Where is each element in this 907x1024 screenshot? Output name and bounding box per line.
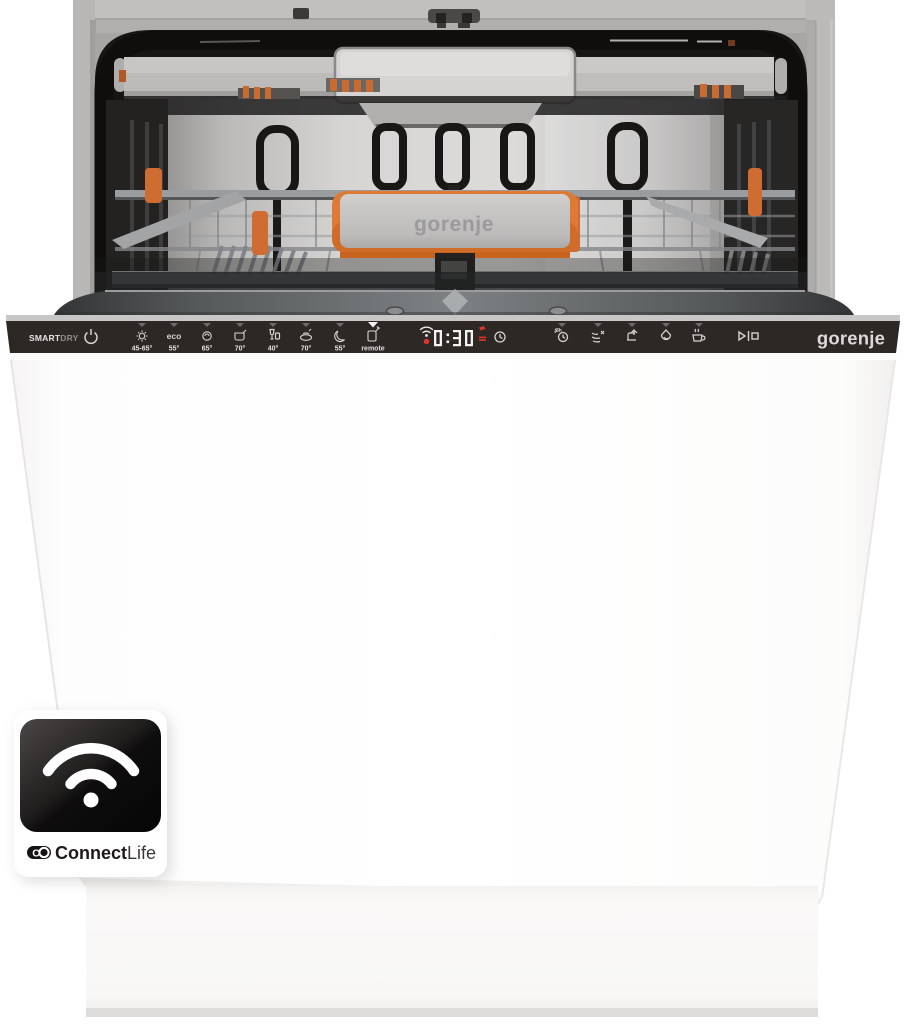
- svg-text:70°: 70°: [301, 345, 312, 353]
- svg-text:gorenje: gorenje: [414, 213, 494, 236]
- svg-text:65°: 65°: [202, 345, 213, 353]
- svg-text:40°: 40°: [268, 345, 279, 353]
- svg-text:55°: 55°: [169, 345, 180, 353]
- svg-text:45-65°: 45-65°: [132, 345, 153, 353]
- svg-text:C: C: [32, 848, 40, 860]
- svg-text:55°: 55°: [335, 345, 346, 353]
- svg-text:remote: remote: [361, 346, 384, 353]
- svg-text:3h: 3h: [556, 328, 562, 334]
- svg-text:SMARTDRY: SMARTDRY: [29, 333, 79, 343]
- svg-text:eco: eco: [167, 331, 182, 341]
- svg-text:70°: 70°: [235, 345, 246, 353]
- svg-text:ConnectLife: ConnectLife: [55, 843, 156, 863]
- svg-text:gorenje: gorenje: [817, 328, 885, 349]
